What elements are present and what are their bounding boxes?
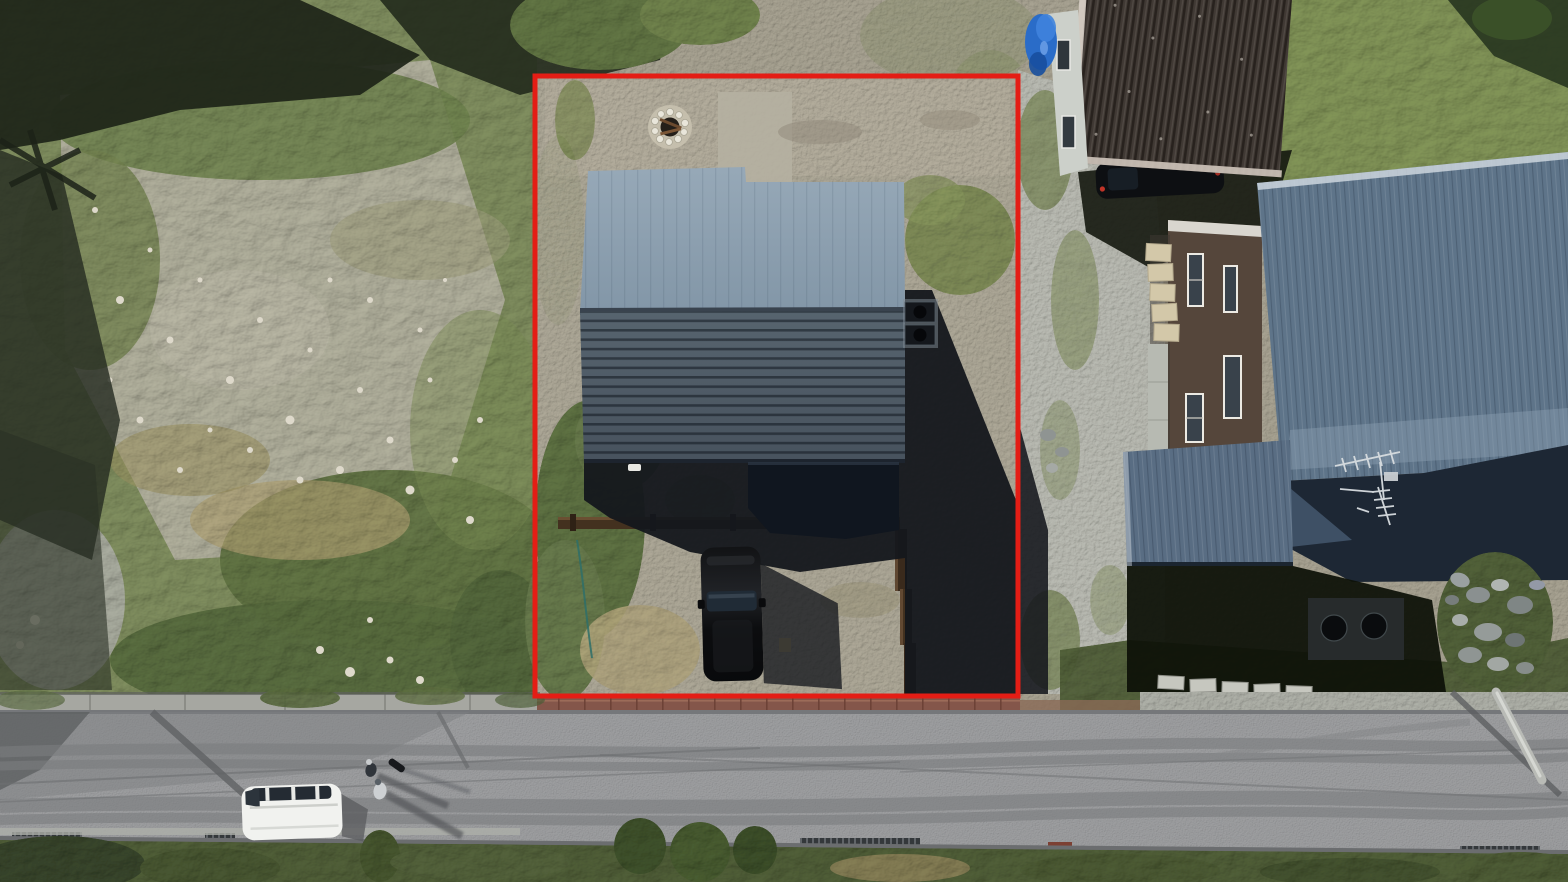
round-cover [1361, 613, 1387, 639]
ac-unit-pad [903, 299, 938, 348]
neighbor-yard-south [1060, 552, 1568, 712]
annex-blue-roof [1123, 440, 1293, 566]
round-cover [1321, 615, 1347, 641]
vent-box [628, 464, 641, 471]
brick-paver-strip [537, 698, 1020, 712]
asphalt-road [0, 692, 1568, 857]
window [1224, 266, 1237, 312]
wall-window [1057, 40, 1070, 70]
yard-object [779, 638, 791, 652]
wall-window [1062, 116, 1075, 148]
aerial-photo-scene [0, 0, 1568, 882]
fire-pit [648, 105, 692, 149]
blue-roof-house [1257, 152, 1568, 582]
window [1224, 356, 1241, 418]
aerial-photo [0, 0, 1568, 882]
neighbor-lawn [1260, 0, 1568, 184]
minivan-roof [712, 619, 753, 672]
minivan-hood-shine [706, 555, 754, 565]
entry-porch-roof [748, 464, 899, 539]
